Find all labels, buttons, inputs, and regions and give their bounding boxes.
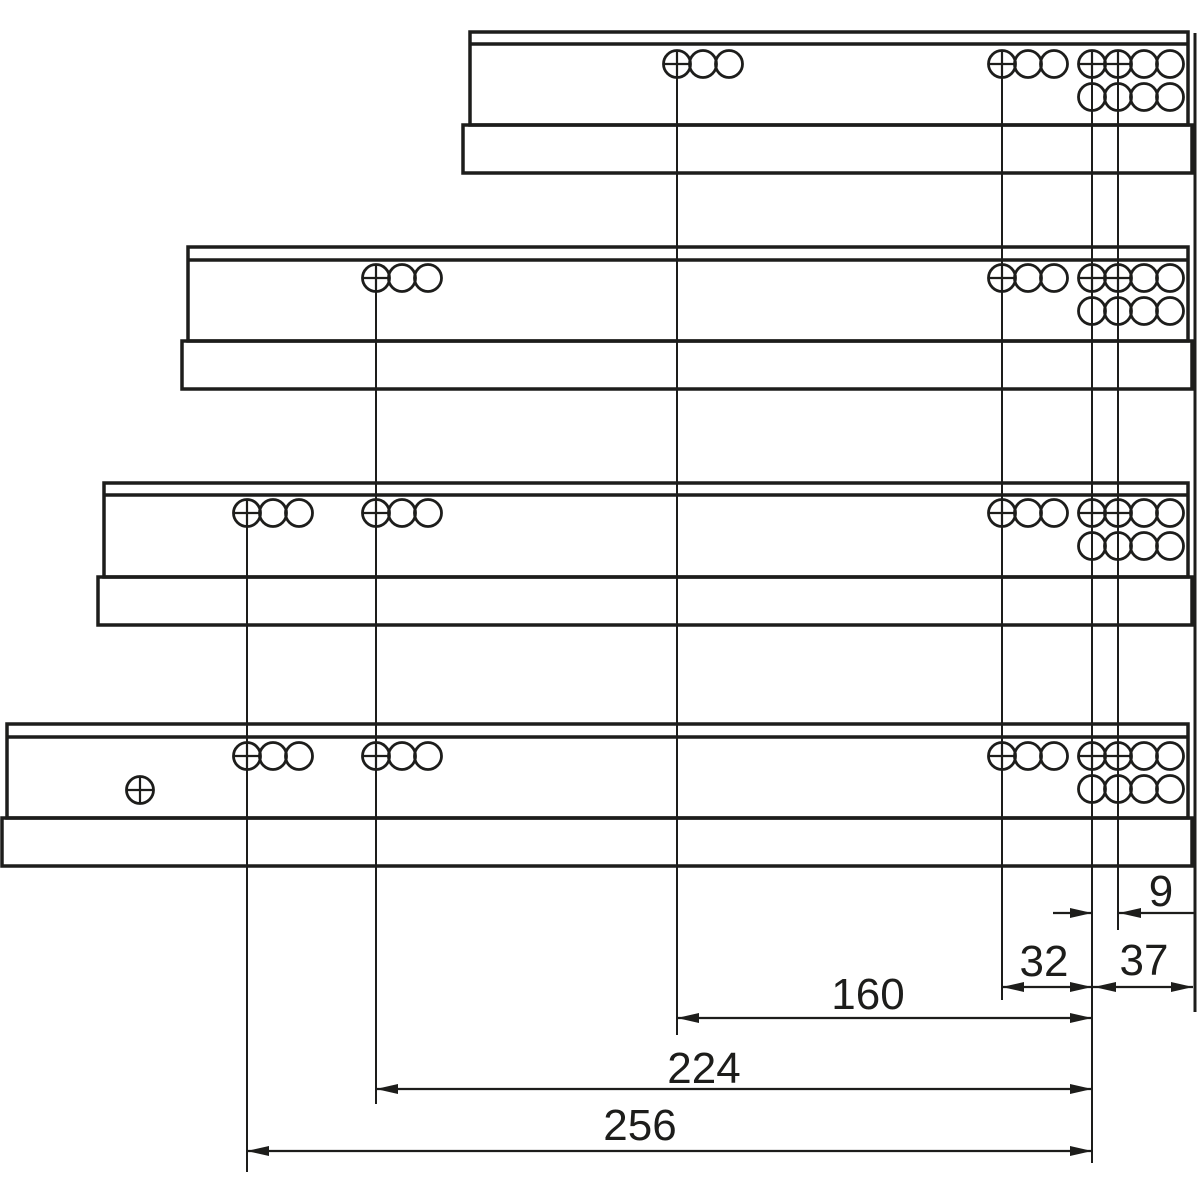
screw-hole — [260, 743, 287, 770]
screw-hole — [1041, 265, 1068, 292]
screw-hole — [1041, 743, 1068, 770]
drawing-canvas: 9 32 37 160 224 256 — [0, 0, 1200, 1200]
screw-hole — [1157, 51, 1184, 78]
dimension-32: 32 — [1002, 937, 1092, 992]
runner-3-hole-group-left-1 — [234, 500, 313, 527]
runner-4-hole-group-left-1 — [234, 743, 313, 770]
screw-hole — [1041, 500, 1068, 527]
runner-2-hole-group-right — [989, 265, 1184, 325]
arrowhead-right — [1070, 908, 1092, 918]
screw-hole — [1015, 51, 1042, 78]
screw-hole — [1015, 500, 1042, 527]
runner-1-hole-group-left — [664, 51, 743, 78]
screw-hole — [1131, 84, 1158, 111]
dimension-label-256: 256 — [603, 1101, 676, 1150]
screw-hole — [690, 51, 717, 78]
runner-3-bottom-profile — [98, 577, 1192, 625]
runner-1 — [463, 32, 1192, 173]
screw-hole — [389, 743, 416, 770]
screw-hole — [1131, 776, 1158, 803]
arrowhead-left — [376, 1084, 398, 1094]
dimension-label-37: 37 — [1120, 936, 1169, 985]
arrowhead-left — [1119, 908, 1141, 918]
screw-hole — [1041, 51, 1068, 78]
screw-hole — [1157, 743, 1184, 770]
screw-hole — [1015, 743, 1042, 770]
screw-hole — [1157, 500, 1184, 527]
dimension-label-32: 32 — [1020, 937, 1069, 986]
screw-hole — [415, 265, 442, 292]
screw-hole — [415, 500, 442, 527]
runner-4 — [2, 724, 1192, 866]
dimension-label-9: 9 — [1149, 867, 1173, 916]
arrowhead-right — [1070, 1084, 1092, 1094]
runner-2-bottom-profile — [182, 341, 1192, 389]
screw-hole — [1131, 298, 1158, 325]
runner-2 — [182, 247, 1192, 389]
screw-hole — [260, 500, 287, 527]
arrowhead-right — [1171, 982, 1193, 992]
screw-hole — [1157, 265, 1184, 292]
arrowhead-left — [247, 1146, 269, 1156]
screw-hole — [1015, 265, 1042, 292]
runner-1-body — [470, 32, 1188, 125]
screw-hole — [1157, 298, 1184, 325]
runner-2-hole-group-left — [363, 265, 442, 292]
screw-hole — [1157, 776, 1184, 803]
arrowhead-left — [677, 1013, 699, 1023]
runner-3-body — [104, 483, 1188, 577]
runner-3 — [98, 483, 1192, 625]
runner-1-hole-group-right — [989, 51, 1184, 111]
dimension-224: 224 — [376, 1044, 1092, 1094]
screw-hole — [389, 500, 416, 527]
extension-lines — [247, 33, 1195, 1172]
screw-hole — [1157, 84, 1184, 111]
front-fixing-hole-crosshair — [127, 777, 154, 804]
arrowhead-right — [1070, 1013, 1092, 1023]
screw-hole — [286, 743, 313, 770]
screw-hole — [1131, 265, 1158, 292]
dimension-label-160: 160 — [831, 970, 904, 1019]
arrowhead-right — [1070, 982, 1092, 992]
runner-4-bottom-profile — [2, 818, 1192, 866]
screw-hole — [1131, 533, 1158, 560]
runner-1-bottom-profile — [463, 125, 1192, 173]
runner-4-hole-group-left-2 — [363, 743, 442, 770]
screw-hole — [1131, 500, 1158, 527]
dimension-256: 256 — [247, 1101, 1092, 1156]
dimension-label-224: 224 — [667, 1044, 740, 1093]
drawing-page: 9 32 37 160 224 256 — [0, 0, 1200, 1200]
screw-hole — [389, 265, 416, 292]
screw-hole — [286, 500, 313, 527]
runner-3-hole-group-right — [989, 500, 1184, 560]
dimension-9: 9 — [1053, 867, 1194, 918]
dimension-37: 37 — [1092, 936, 1193, 992]
screw-hole — [1131, 51, 1158, 78]
runner-3-hole-group-left-2 — [363, 500, 442, 527]
screw-hole — [415, 743, 442, 770]
screw-hole — [716, 51, 743, 78]
runner-4-hole-group-right — [989, 743, 1184, 803]
screw-hole — [1157, 533, 1184, 560]
arrowhead-left — [1094, 982, 1116, 992]
screw-hole — [1131, 743, 1158, 770]
arrowhead-right — [1070, 1146, 1092, 1156]
